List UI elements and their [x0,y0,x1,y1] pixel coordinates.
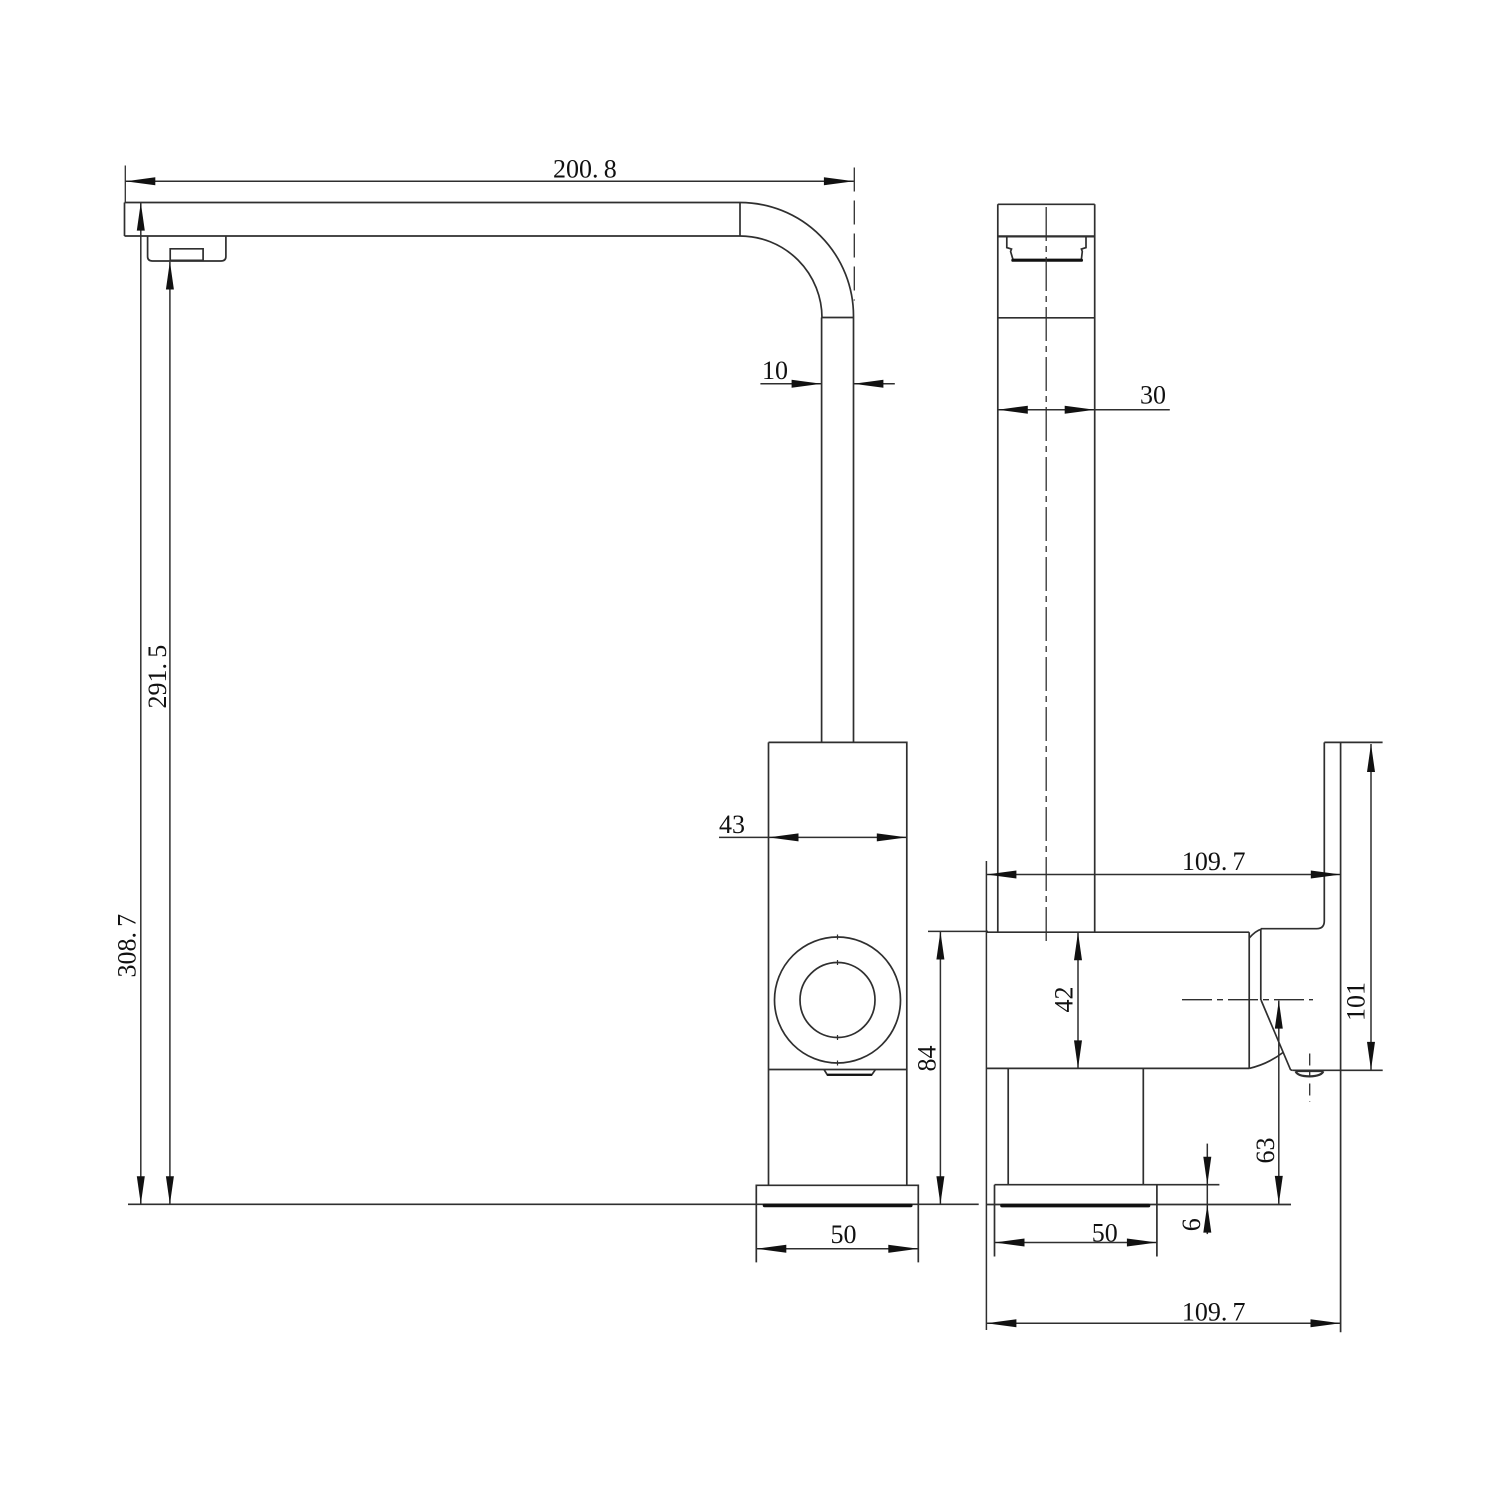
svg-text:308. 7: 308. 7 [113,914,142,978]
svg-text:109. 7: 109. 7 [1182,1298,1246,1327]
svg-text:30: 30 [1140,381,1166,410]
svg-text:6: 6 [1177,1218,1206,1231]
svg-text:200. 8: 200. 8 [553,155,617,184]
svg-text:10: 10 [762,356,788,385]
svg-text:291. 5: 291. 5 [143,645,172,709]
svg-text:109. 7: 109. 7 [1182,847,1246,876]
svg-text:43: 43 [719,810,745,839]
svg-text:50: 50 [1092,1219,1118,1248]
svg-text:84: 84 [913,1046,942,1072]
svg-text:63: 63 [1251,1138,1280,1164]
svg-text:42: 42 [1050,987,1079,1013]
svg-text:101: 101 [1342,982,1371,1021]
svg-text:50: 50 [831,1220,857,1249]
